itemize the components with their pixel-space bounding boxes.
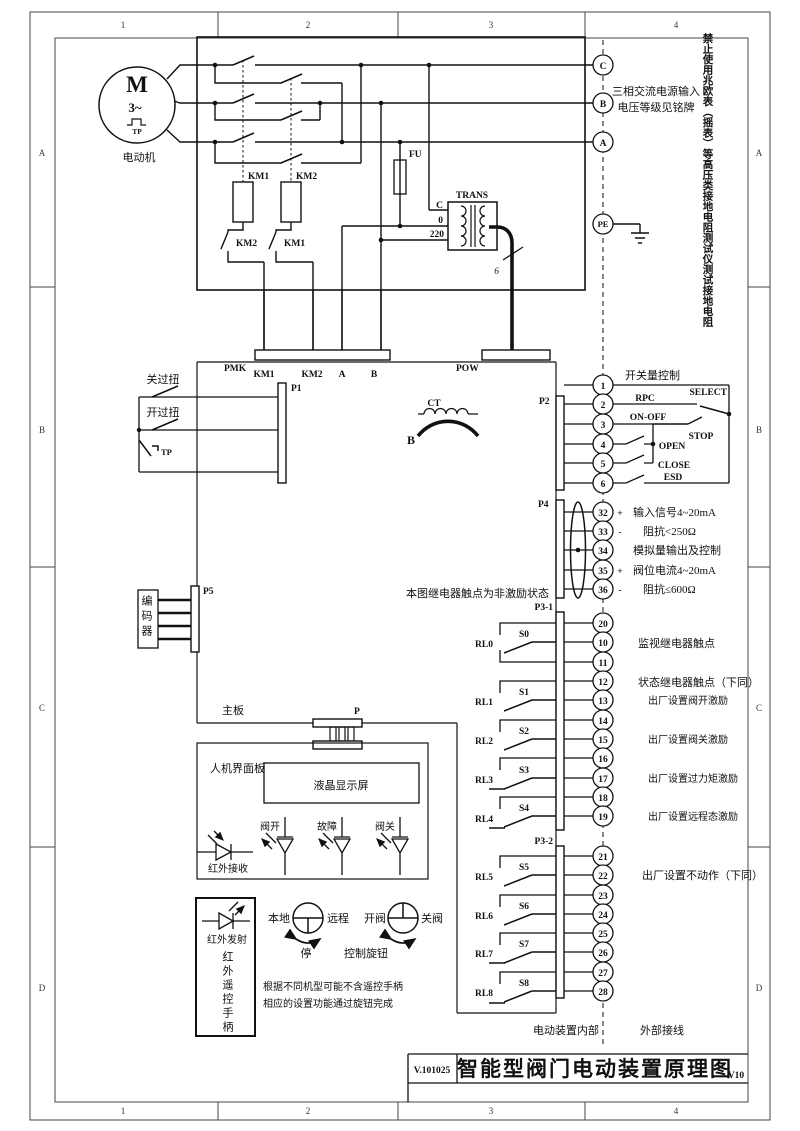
- p4-terminal: 32: [598, 509, 608, 519]
- power-circuit: [167, 37, 585, 350]
- relay-label: RL1: [475, 698, 493, 708]
- motor-phases: 3~: [128, 100, 142, 115]
- p3-1-terminal: 18: [598, 794, 608, 804]
- p3-2-terminal: 23: [598, 892, 608, 902]
- p3-2-label: P3-2: [535, 837, 554, 847]
- p4-terminal: 35: [598, 567, 608, 577]
- p3-1-terminal: 15: [598, 736, 608, 746]
- row-label: B: [39, 425, 45, 435]
- bus-wire-a: A: [339, 370, 346, 380]
- p2-terminal: 3: [601, 421, 606, 431]
- p2-terminal: 5: [601, 460, 606, 470]
- relay-label: RL4: [475, 815, 493, 825]
- p1-tp-label: TP: [161, 447, 172, 457]
- terminal-c: C: [600, 62, 607, 72]
- note-close: 出厂设置阀关激励: [648, 733, 728, 746]
- close-label: CLOSE: [658, 461, 690, 471]
- km2-interlock-label: KM2: [236, 239, 257, 249]
- hmi-label: 人机界面板: [210, 761, 265, 775]
- bus-wire-km2: KM2: [301, 370, 322, 380]
- p3-2-terminal: 25: [598, 930, 608, 940]
- bus-wire-b: B: [371, 370, 378, 380]
- open-label: OPEN: [659, 442, 686, 452]
- relay-label: RL3: [475, 776, 493, 786]
- supply-note-1: 三相交流电源输入: [612, 84, 700, 98]
- doc-number: V.101025: [414, 1066, 451, 1076]
- row-label: D: [39, 983, 46, 993]
- p4-sign-35: +: [617, 567, 622, 577]
- km1-contact-label: KM1: [248, 172, 269, 182]
- valve-signal-label: 阀位电流4~20mA: [633, 563, 716, 577]
- terminal-pe: PE: [598, 219, 609, 229]
- relay-note: 本图继电器触点为非激励状态: [406, 586, 549, 600]
- onoff-label: ON-OFF: [630, 413, 667, 423]
- relay-label: RL7: [475, 950, 493, 960]
- row-label: A: [756, 148, 763, 158]
- rpc-label: RPC: [635, 394, 655, 404]
- switch-label: S4: [519, 804, 529, 814]
- p4-sign-33: -: [618, 528, 621, 538]
- tap-0-label: 0: [438, 216, 443, 226]
- switch-label: S5: [519, 863, 529, 873]
- p2-terminal: 1: [601, 382, 606, 392]
- ir-emitter-icon: [202, 902, 250, 929]
- note-remote: 出厂设置远程态激励: [648, 810, 738, 823]
- led-emission-arrows: [262, 833, 276, 849]
- knob-remote-label: 远程: [327, 912, 349, 925]
- col-label: 4: [674, 1106, 679, 1116]
- relay-label: RL2: [475, 737, 493, 747]
- grounding-warning-text: 禁止使用兆欧表（摇表）等高压类接地电阻测试仪测试接地电阻: [701, 33, 712, 328]
- p2-terminal: 2: [601, 401, 606, 411]
- p3-1-terminal: 20: [598, 620, 608, 630]
- p3-2-terminal: 21: [598, 853, 608, 863]
- valve-impedance-label: 阻抗≤600Ω: [643, 582, 696, 596]
- note-monitor: 监视继电器触点: [638, 636, 715, 650]
- relay-label: RL0: [475, 640, 493, 650]
- bus-wire-km1: KM1: [253, 370, 274, 380]
- p-connector-label: P: [354, 707, 360, 717]
- pmk-label: PMK: [224, 364, 247, 374]
- encoder-label: 编码器: [140, 595, 151, 647]
- p4-terminal: 33: [598, 528, 608, 538]
- p3-1-relays: P3-1 20 10 11 12 13 14 15 16 17 18 19 RL…: [475, 603, 759, 830]
- remote-note-2: 相应的设置功能通过旋钮完成: [263, 997, 393, 1010]
- row-label: D: [756, 983, 763, 993]
- knob-close-label: 关阀: [421, 911, 443, 925]
- ir-tx-label: 红外发射: [207, 933, 247, 946]
- relay-label: RL8: [475, 989, 493, 999]
- motor-tp: TP: [132, 127, 142, 136]
- switch-label: S3: [519, 766, 529, 776]
- bus-bars: PMK KM1 KM2 A B POW: [224, 290, 550, 380]
- p2-header: 开关量控制: [625, 368, 680, 382]
- p3-1-terminal: 16: [598, 755, 608, 765]
- pow-label: POW: [456, 364, 479, 374]
- title-block: V.101025 智能型阀门电动装置原理图 V10: [408, 1054, 748, 1102]
- p3-1-terminal: 14: [598, 717, 608, 727]
- col-label: 2: [306, 20, 311, 30]
- col-label: 3: [489, 1106, 494, 1116]
- transformer-label: TRANS: [456, 191, 488, 201]
- select-label: SELECT: [690, 388, 728, 398]
- p3-2-terminal: 28: [598, 988, 608, 998]
- remote-note-1: 根据不同机型可能不含遥控手柄: [263, 980, 403, 993]
- core-count-label: 6: [494, 267, 499, 277]
- km1-interlock-label: KM1: [284, 239, 305, 249]
- input-signal-label: 输入信号4~20mA: [633, 505, 716, 519]
- knob-open-label: 开阀: [364, 911, 386, 925]
- col-label: 2: [306, 1106, 311, 1116]
- col-label: 3: [489, 20, 494, 30]
- ir-rx-label: 红外接收: [208, 862, 248, 875]
- terminal-b: B: [600, 100, 607, 110]
- row-label: C: [756, 703, 762, 713]
- ir-handle-label: 红外遥控手柄: [221, 951, 232, 1035]
- col-label: 1: [121, 20, 126, 30]
- knob-local-label: 本地: [268, 911, 290, 925]
- note-open: 出厂设置阀开激励: [648, 694, 728, 707]
- ct-phase-label: B: [407, 433, 415, 447]
- p3-2-terminal: 26: [598, 949, 608, 959]
- tap-c-label: C: [436, 201, 443, 211]
- p4-terminal: 34: [598, 547, 608, 557]
- terminal-a: A: [600, 139, 607, 149]
- switch-label: S0: [519, 630, 529, 640]
- switch-label: S8: [519, 979, 529, 989]
- p2-label: P2: [539, 397, 550, 407]
- lcd-label: 液晶显示屏: [314, 778, 369, 792]
- fuse-label: FU: [409, 150, 422, 160]
- p4-label: P4: [538, 500, 549, 510]
- input-impedance-label: 阻抗<250Ω: [643, 524, 696, 538]
- p3-1-terminal: 10: [598, 639, 608, 649]
- motor-letter: M: [126, 72, 148, 97]
- p1-label: P1: [291, 384, 302, 394]
- note-status: 状态继电器触点（下同）: [638, 675, 759, 689]
- p2-terminal: 6: [601, 480, 606, 490]
- p3-2-terminal: 24: [598, 911, 608, 921]
- col-label: 1: [121, 1106, 126, 1116]
- relay-label: RL6: [475, 912, 493, 922]
- analog-label: 模拟量输出及控制: [633, 543, 721, 557]
- switch-label: S6: [519, 902, 529, 912]
- drawing-title: 智能型阀门电动装置原理图: [457, 1057, 733, 1081]
- p3-1-terminal: 12: [598, 678, 608, 688]
- open-torque-label: 开过扭: [147, 405, 180, 419]
- tap-220-label: 220: [430, 230, 445, 240]
- control-knobs: 本地 远程 停 开阀 关阀 控制旋钮 根据不同机型可能不含遥控手柄 相应的设置功…: [263, 903, 443, 1010]
- p2-terminal: 4: [601, 441, 606, 451]
- led-open-label: 阀开: [260, 820, 280, 833]
- knob-label: 控制旋钮: [344, 946, 388, 960]
- p3-1-terminal: 17: [598, 775, 608, 785]
- note-no-action: 出厂设置不动作（下同）: [642, 868, 763, 882]
- earth-icon: [631, 233, 649, 243]
- close-torque-label: 关过扭: [147, 372, 180, 386]
- led-fault-label: 故障: [317, 820, 337, 833]
- esd-label: ESD: [664, 473, 683, 483]
- ir-receiver-icon: [197, 831, 253, 860]
- p4-terminal: 36: [598, 586, 608, 596]
- switch-label: S1: [519, 688, 529, 698]
- schematic-page: 1 2 3 4 1 2 3 4 A B C D A B C D M 3~ TP …: [0, 0, 800, 1131]
- p4-sign-32: +: [617, 509, 622, 519]
- main-board-label: 主板: [222, 703, 244, 717]
- boundary-outside-label: 外部接线: [640, 1023, 684, 1037]
- hmi-board: 人机界面板 液晶显示屏 阀开 故障 阀关 红外接收: [197, 743, 428, 879]
- stop-label: STOP: [689, 432, 714, 442]
- col-label: 4: [674, 20, 679, 30]
- p3-1-terminal: 11: [599, 659, 608, 669]
- boundary-inside-label: 电动装置内部: [533, 1023, 599, 1037]
- p3-1-terminal: 13: [598, 697, 608, 707]
- motor-label: 电动机: [123, 150, 156, 164]
- p3-1-terminal: 19: [598, 813, 608, 823]
- km2-contact-label: KM2: [296, 172, 317, 182]
- version-label: V10: [728, 1071, 745, 1081]
- switch-label: S7: [519, 940, 529, 950]
- p3-1-label: P3-1: [535, 603, 554, 613]
- relay-label: RL5: [475, 873, 493, 883]
- switch-label: S2: [519, 727, 529, 737]
- supply-terminals: C B A PE 三相交流电源输入 电压等级见铭牌: [585, 55, 700, 243]
- note-torque: 出厂设置过力矩激励: [648, 772, 738, 785]
- row-label: A: [39, 148, 46, 158]
- row-label: B: [756, 425, 762, 435]
- p2-digital-control: P2 开关量控制 1 2 3 4 5 6 RPC SELECT ON-OFF S…: [539, 368, 731, 493]
- supply-note-2: 电压等级见铭牌: [618, 100, 695, 114]
- p1-torque-switches: P1 关过扭 开过扭 TP: [137, 372, 302, 483]
- current-transformer: [418, 409, 478, 437]
- p3-2-terminal: 22: [598, 872, 608, 882]
- p3-2-relays: P3-2 21 22 23 24 25 26 27 28 RL5 RL6 RL7…: [475, 837, 763, 1003]
- row-label: C: [39, 703, 45, 713]
- knob-stop-label: 停: [301, 946, 312, 960]
- p5-label: P5: [203, 587, 214, 597]
- led-close-label: 阀关: [375, 820, 395, 833]
- p3-2-terminal: 27: [598, 969, 608, 979]
- p4-analog: P4 32 33 34 35 36 + - + - 输入信号4~20mA 阻抗<…: [538, 500, 721, 599]
- ct-label: CT: [427, 399, 441, 409]
- schematic-canvas: 1 2 3 4 1 2 3 4 A B C D A B C D M 3~ TP …: [0, 0, 800, 1131]
- p4-sign-36: -: [618, 586, 621, 596]
